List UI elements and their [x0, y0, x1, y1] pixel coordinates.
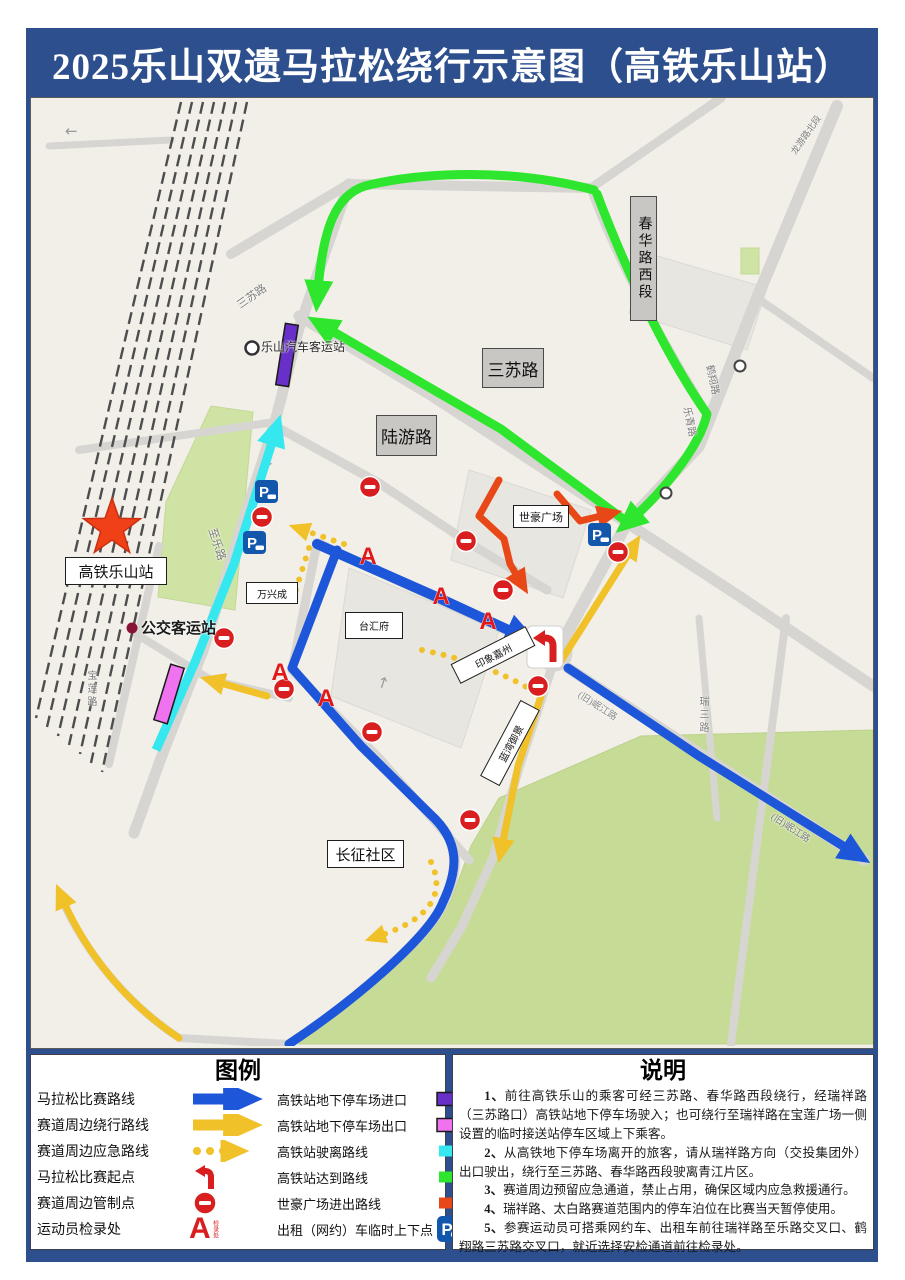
legend-item-garage-entrance: 高铁站地下停车场进口: [277, 1090, 435, 1109]
poster-sheet: 2025乐山双遗马拉松绕行示意图（高铁乐山站）: [26, 28, 878, 1262]
legend-title: 图例: [37, 1057, 439, 1085]
legend-item-start-point: 马拉松比赛起点: [37, 1167, 189, 1187]
oneway-left-icon: ←: [65, 122, 78, 140]
emergency-route-dotted-arrow-icon: [189, 1140, 277, 1162]
legend-item-taxi-point: 出租（网约）车临时上下点: [277, 1220, 435, 1239]
legend-item-emergency-route: 赛道周边应急路线: [37, 1141, 189, 1161]
detour-route-arrow-icon: [189, 1114, 277, 1136]
notes-title: 说明: [459, 1057, 867, 1085]
legend-grid: 马拉松比赛路线 高铁站地下停车场进口 赛道周边绕行路线 高铁站地下停车场出口 赛…: [37, 1086, 439, 1242]
notes-panel: 说明 1、前往高铁乐山的乘客可经三苏路、春华路西段绕行，经瑞祥路（三苏路口）高铁…: [452, 1054, 874, 1250]
note-5: 5、参赛运动员可搭乘网约车、出租车前往瑞祥路至乐路交叉口、鹤翔路三苏路交叉口，就…: [459, 1219, 867, 1257]
shihao-plaza-box: 世豪广场: [513, 505, 569, 528]
legend-item-arrive-route: 高铁站达到路线: [277, 1168, 435, 1187]
svg-text:P: P: [592, 527, 602, 544]
station-star-icon: [84, 498, 141, 552]
chunhua-road-box: 春华路西段: [630, 196, 657, 321]
svg-text:A: A: [359, 543, 376, 570]
legend-item-detour-route: 赛道周边绕行路线: [37, 1115, 189, 1135]
station-label-box: 高铁乐山站: [65, 557, 167, 585]
svg-text:A: A: [432, 583, 449, 610]
note-4: 4、瑞祥路、太白路赛道范围内的停车泊位在比赛当天暂停使用。: [459, 1200, 867, 1219]
taihui-box: 台汇府: [345, 612, 403, 639]
note-1: 1、前往高铁乐山的乘客可经三苏路、春华路西段绕行，经瑞祥路（三苏路口）高铁站地下…: [459, 1087, 867, 1144]
changzheng-community-box: 长征社区: [327, 840, 404, 868]
note-2: 2、从高铁地下停车场离开的旅客，请从瑞祥路方向（交投集团外）出口驶出，绕行至三苏…: [459, 1144, 867, 1182]
svg-text:A: A: [271, 659, 288, 686]
checkin-a-legend-icon: A检录处: [189, 1217, 277, 1241]
svg-text:A: A: [479, 608, 496, 635]
bus-station-dot-icon: [127, 623, 138, 634]
note-3: 3、赛道周边预留应急通道，禁止占用，确保区域内应急救援通行。: [459, 1181, 867, 1200]
legend-item-depart-route: 高铁站驶离路线: [277, 1142, 435, 1161]
legend-item-marathon-route: 马拉松比赛路线: [37, 1089, 189, 1109]
legend-panel: 图例 马拉松比赛路线 高铁站地下停车场进口 赛道周边绕行路线 高铁站地下停车场出…: [30, 1054, 446, 1250]
start-point-legend-icon: [189, 1164, 277, 1190]
svg-text:P: P: [247, 535, 257, 552]
notes-text: 1、前往高铁乐山的乘客可经三苏路、春华路西段绕行，经瑞祥路（三苏路口）高铁站地下…: [459, 1087, 867, 1257]
title-bar: 2025乐山双遗马拉松绕行示意图（高铁乐山站）: [30, 32, 874, 94]
svg-text:P: P: [259, 484, 269, 501]
sansu-road-box: 三苏路: [482, 348, 544, 388]
legend-item-checkin: 运动员检录处: [37, 1219, 189, 1239]
legend-item-shihao-route: 世豪广场进出路线: [277, 1194, 435, 1213]
svg-text:A: A: [317, 685, 334, 712]
coach-station-label: 乐山汽车客运站: [261, 338, 345, 355]
wanxing-box: 万兴成: [246, 582, 298, 604]
road-label-ruisan: 瑞三路: [695, 696, 710, 735]
page-title: 2025乐山双遗马拉松绕行示意图（高铁乐山站）: [52, 36, 852, 90]
legend-item-garage-exit: 高铁站地下停车场出口: [277, 1116, 435, 1135]
detour-map: ← ↓ ↑: [30, 97, 874, 1049]
legend-item-control-point: 赛道周边管制点: [37, 1193, 189, 1213]
road-label-baolian: 宝莲路: [83, 670, 98, 709]
svg-text:P: P: [441, 1220, 452, 1239]
marathon-route-arrow-icon: [189, 1088, 277, 1110]
bus-station-label: 公交客运站: [141, 617, 216, 638]
bottom-panels: 图例 马拉松比赛路线 高铁站地下停车场进口 赛道周边绕行路线 高铁站地下停车场出…: [30, 1054, 874, 1250]
luyou-road-box: 陆游路: [376, 415, 437, 456]
